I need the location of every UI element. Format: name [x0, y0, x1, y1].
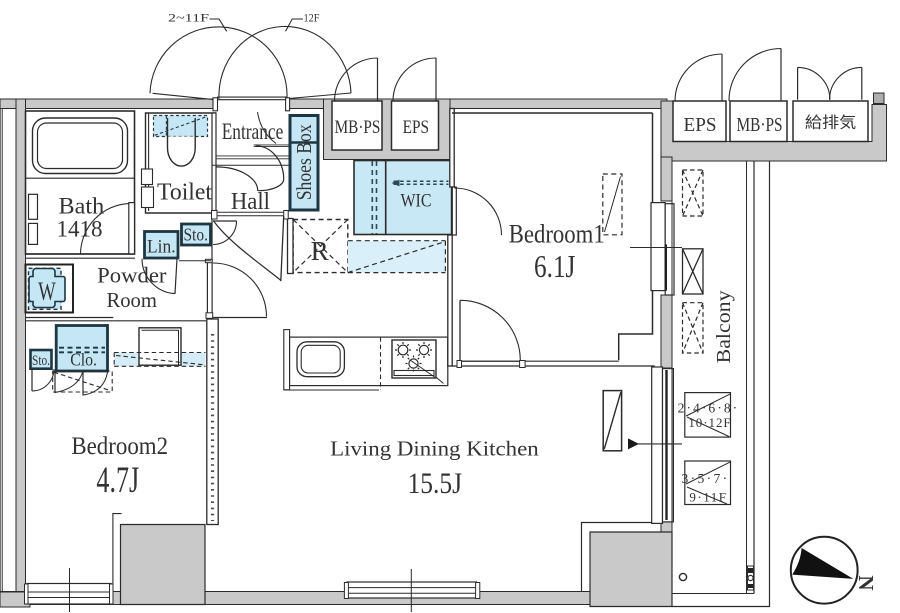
svg-text:Sto.: Sto.	[183, 225, 208, 245]
svg-text:Shoes Box: Shoes Box	[292, 124, 316, 200]
svg-text:MB·PS: MB·PS	[737, 115, 783, 136]
svg-text:Bedroom1: Bedroom1	[509, 219, 605, 248]
svg-text:4.7J: 4.7J	[96, 460, 139, 501]
svg-text:WIC: WIC	[401, 191, 432, 212]
svg-text:MB·PS: MB·PS	[335, 117, 381, 138]
svg-text:Living Dining Kitchen: Living Dining Kitchen	[330, 436, 539, 460]
svg-text:Hall: Hall	[231, 189, 270, 215]
svg-text:10·12F: 10·12F	[688, 415, 730, 430]
svg-text:R: R	[311, 236, 330, 266]
svg-text:N: N	[854, 575, 878, 590]
svg-text:Entrance: Entrance	[222, 119, 284, 145]
svg-text:Lin.: Lin.	[147, 237, 176, 258]
svg-text:W: W	[38, 276, 56, 306]
svg-text:Balcony: Balcony	[713, 290, 735, 364]
svg-text:Bedroom2: Bedroom2	[71, 433, 168, 460]
svg-text:Room: Room	[106, 290, 157, 312]
svg-text:12F: 12F	[304, 11, 320, 25]
svg-text:Powder: Powder	[97, 263, 167, 288]
svg-text:6.1J: 6.1J	[534, 249, 575, 284]
svg-text:15.5J: 15.5J	[408, 468, 462, 500]
svg-text:EPS: EPS	[403, 117, 429, 138]
svg-text:Clo.: Clo.	[70, 350, 97, 370]
svg-text:Sto.: Sto.	[32, 353, 50, 369]
svg-text:EPS: EPS	[684, 115, 717, 136]
svg-text:9·11F: 9·11F	[689, 490, 726, 505]
svg-text:Toilet: Toilet	[157, 180, 212, 206]
svg-text:1418: 1418	[57, 216, 103, 242]
svg-text:2~11F: 2~11F	[168, 11, 209, 25]
svg-text:給排気: 給排気	[805, 114, 856, 132]
